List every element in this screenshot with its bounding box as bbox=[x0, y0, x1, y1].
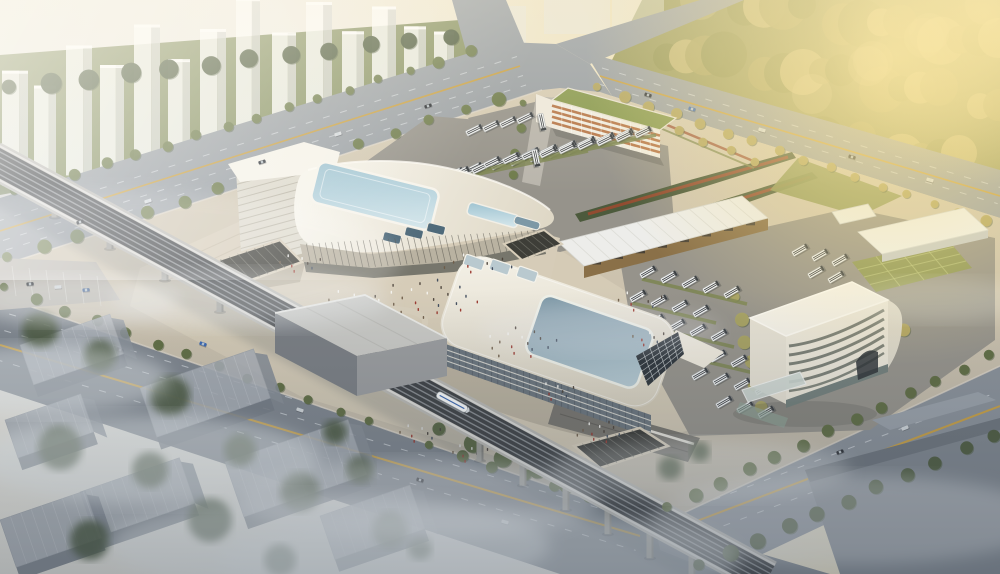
warm-wash bbox=[0, 0, 1000, 190]
rendering-canvas bbox=[0, 0, 1000, 574]
light-overlays bbox=[0, 0, 1000, 574]
cool-wash bbox=[0, 280, 1000, 574]
aerial-rendering bbox=[0, 0, 1000, 574]
